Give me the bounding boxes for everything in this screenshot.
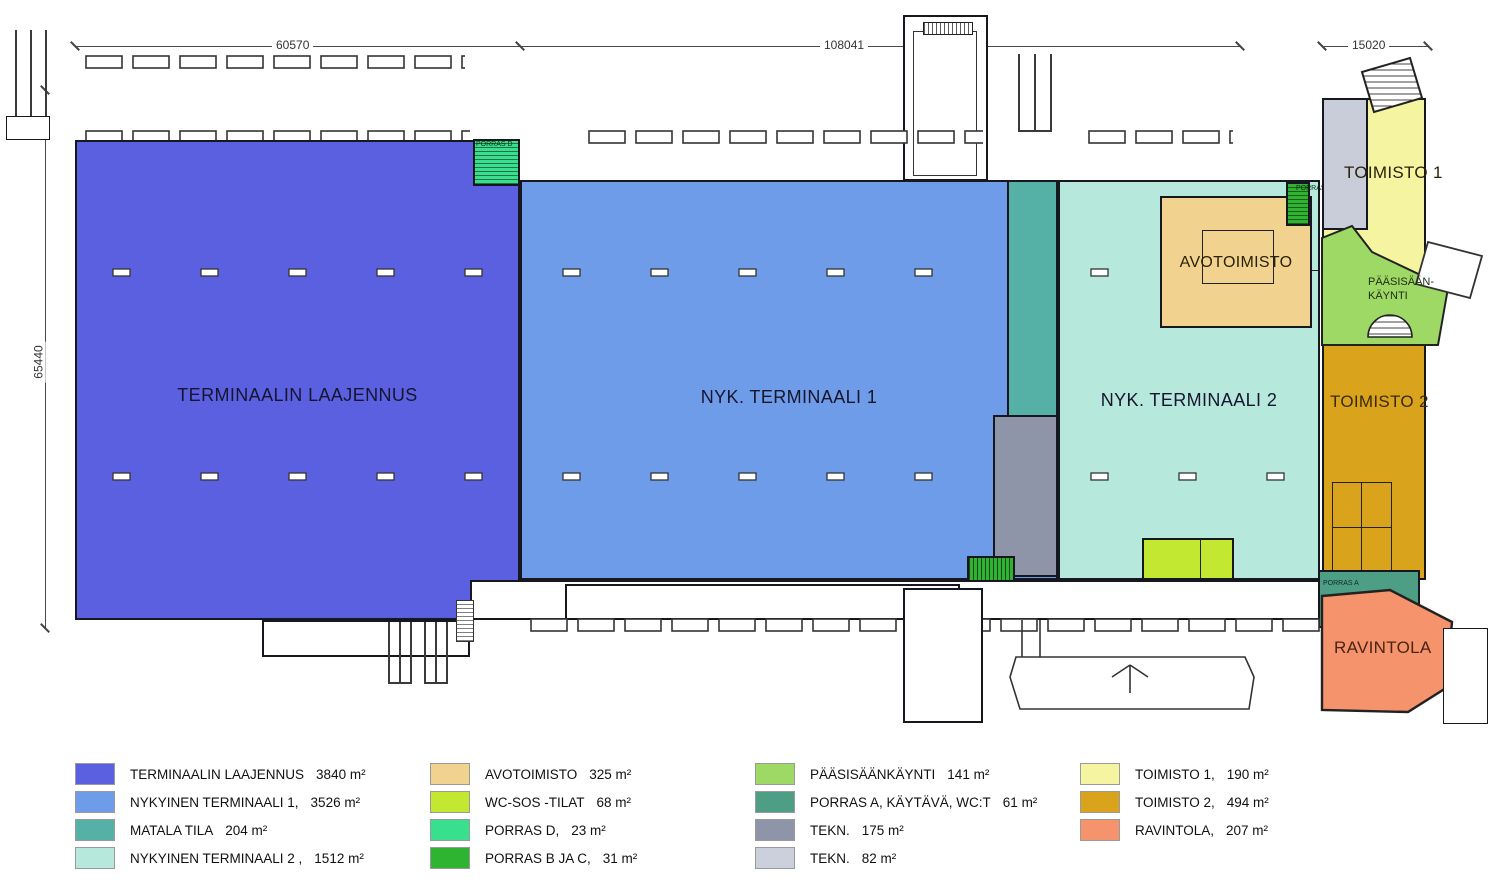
zone-terminaalin-laajennus: TERMINAALIN LAAJENNUS [75,140,520,620]
legend-swatch [430,763,470,785]
toimisto2-label: TOIMISTO 2 [1330,392,1429,412]
legend-label: TOIMISTO 2, [1135,795,1215,810]
skylight-row [112,268,490,277]
inner-outline [913,31,977,176]
legend-item: PORRAS A, KÄYTÄVÄ, WC:T 61 m² [755,790,1037,814]
legend-swatch [75,819,115,841]
legend-area: 204 m² [225,823,267,838]
zone-label: AVOTOIMISTO [1162,254,1310,272]
legend-item: NYKYINEN TERMINAALI 1, 3526 m² [75,790,366,814]
zone-wc-sos [1142,538,1234,580]
annex-block [6,116,50,140]
zone-nyk-terminaali-1: NYK. TERMINAALI 1 [520,180,1058,580]
window-band [85,55,465,70]
zone-label: NYK. TERMINAALI 2 [1060,390,1318,411]
porras-d-label: PORRAS D [476,141,513,148]
window-band [588,130,983,145]
legend-swatch [75,763,115,785]
legend-area: 207 m² [1226,823,1268,838]
paasisaankaynti-line2: KÄYNTI [1368,290,1434,304]
dimension-top-center: 108041 [820,38,868,52]
legend-area: 61 m² [1003,795,1038,810]
legend-area: 3840 m² [316,767,366,782]
dimension-line-top [75,46,1240,47]
legend-item: PÄÄSISÄÄNKÄYNTI 141 m² [755,762,1037,786]
legend-label: TEKN. [810,823,850,838]
zone-label: NYK. TERMINAALI 1 [522,387,1056,408]
zone-porras-c [967,556,1015,582]
legend-label: PORRAS B JA C, [485,851,591,866]
legend-item: TOIMISTO 2, 494 m² [1080,790,1269,814]
skylight-row [562,268,982,277]
canopy [1010,657,1254,709]
legend-label: WC-SOS -TILAT [485,795,585,810]
loading-platform [565,584,960,620]
legend-label: PÄÄSISÄÄNKÄYNTI [810,767,935,782]
legend-label: TOIMISTO 1, [1135,767,1215,782]
legend-label: NYKYINEN TERMINAALI 2 , [130,851,302,866]
south-protrusion [903,588,983,723]
legend-area: 68 m² [597,795,632,810]
legend-swatch [1080,763,1120,785]
legend-swatch [430,819,470,841]
legend-item: MATALA TILA 204 m² [75,818,366,842]
dock-rail [424,622,448,684]
legend-label: PORRAS A, KÄYTÄVÄ, WC:T [810,795,991,810]
north-protrusion [903,15,988,181]
legend-column-2: AVOTOIMISTO 325 m² WC-SOS -TILAT 68 m² P… [430,762,637,874]
paasisaankaynti-line1: PÄÄSISÄÄN- [1368,276,1434,290]
canopy-shapes [1008,615,1258,725]
skylight-row [112,472,490,481]
legend-item: AVOTOIMISTO 325 m² [430,762,637,786]
legend-item: PORRAS D, 23 m² [430,818,637,842]
legend-swatch [75,847,115,869]
rail-structure [1018,54,1052,132]
legend-area: 175 m² [862,823,904,838]
legend-area: 31 m² [603,851,638,866]
window-band [1088,130,1233,145]
legend-area: 82 m² [862,851,897,866]
legend-swatch [755,847,795,869]
legend-area: 23 m² [571,823,606,838]
legend-area: 141 m² [947,767,989,782]
legend-area: 3526 m² [311,795,361,810]
legend-column-3: PÄÄSISÄÄNKÄYNTI 141 m² PORRAS A, KÄYTÄVÄ… [755,762,1037,874]
legend-swatch [75,791,115,813]
legend-label: AVOTOIMISTO [485,767,577,782]
floor-plan-sheet: 60570 108041 15020 65440 TERMINAALIN LAA… [0,0,1488,888]
canopy-rails [1022,620,1040,657]
zone-matala-tila [1007,180,1058,417]
legend-label: MATALA TILA [130,823,213,838]
legend-label: NYKYINEN TERMINAALI 1, [130,795,299,810]
tilted-stair [1362,58,1422,112]
legend-item: TERMINAALIN LAAJENNUS 3840 m² [75,762,366,786]
dimension-left: 65440 [32,341,46,382]
legend-swatch [755,819,795,841]
wc-partition [1200,540,1201,578]
legend-label: TEKN. [810,851,850,866]
legend-area: 494 m² [1227,795,1269,810]
skylight-row [1090,268,1148,277]
legend-swatch [1080,819,1120,841]
legend-swatch [755,791,795,813]
legend-item: RAVINTOLA, 207 m² [1080,818,1269,842]
legend-area: 190 m² [1227,767,1269,782]
legend-item: TOIMISTO 1, 190 m² [1080,762,1269,786]
skylight-row [1090,472,1300,481]
legend-column-4: TOIMISTO 1, 190 m² TOIMISTO 2, 494 m² RA… [1080,762,1269,846]
legend-item: NYKYINEN TERMINAALI 2 , 1512 m² [75,846,366,870]
legend-swatch [1080,791,1120,813]
ravintola-label: RAVINTOLA [1334,638,1432,658]
small-stair [456,600,474,642]
legend-area: 1512 m² [314,851,364,866]
stair-hatch [923,22,973,35]
dimension-top-right: 15020 [1348,38,1389,52]
legend-item: PORRAS B JA C, 31 m² [430,846,637,870]
zone-label: TERMINAALIN LAAJENNUS [77,385,518,406]
legend-area: 325 m² [589,767,631,782]
paasisaankaynti-label: PÄÄSISÄÄN- KÄYNTI [1368,276,1434,304]
south-east-protrusion [1443,628,1488,724]
legend-label: PORRAS D, [485,823,559,838]
legend-swatch [430,847,470,869]
legend-swatch [430,791,470,813]
zone-tekn-dark [993,415,1058,577]
dimension-top-left: 60570 [272,38,313,52]
toimisto1-label: TOIMISTO 1 [1344,163,1443,183]
dock-rail [388,622,412,684]
legend-label: RAVINTOLA, [1135,823,1214,838]
legend-item: TEKN. 175 m² [755,818,1037,842]
legend-label: TERMINAALIN LAAJENNUS [130,767,304,782]
legend-column-1: TERMINAALIN LAAJENNUS 3840 m² NYKYINEN T… [75,762,366,874]
legend-swatch [755,763,795,785]
skylight-row [562,472,982,481]
legend-item: WC-SOS -TILAT 68 m² [430,790,637,814]
legend-item: TEKN. 82 m² [755,846,1037,870]
